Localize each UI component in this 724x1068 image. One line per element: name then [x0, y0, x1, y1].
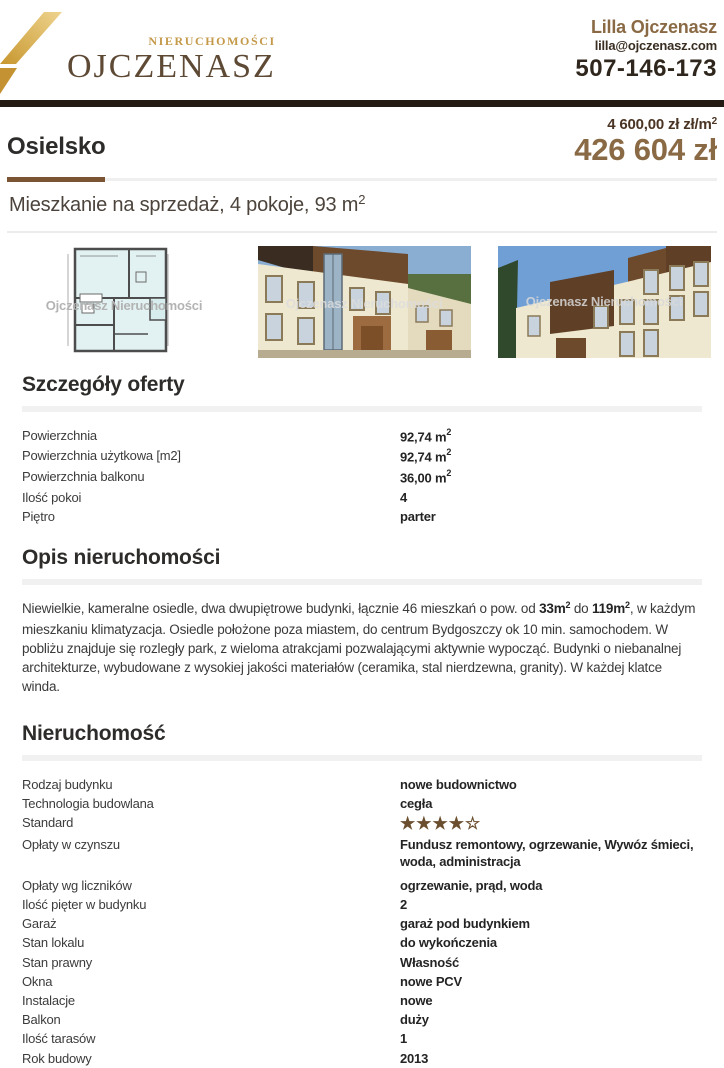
- unit-superscript: 2: [446, 447, 451, 457]
- row-label: Technologia budowlana: [22, 797, 400, 811]
- price-block: 4 600,00 zł zł/m2 426 604 zł: [574, 117, 717, 166]
- description-divider: [22, 579, 702, 585]
- title-underline-accent: [7, 177, 105, 182]
- agent-email[interactable]: lilla@ojczenasz.com: [575, 39, 717, 54]
- star-rating: ★★★★☆: [400, 816, 702, 832]
- table-row: Opłaty w czynszuFundusz remontowy, ogrze…: [22, 835, 702, 876]
- price-per-m2-sup: 2: [712, 116, 717, 127]
- row-value: do wykończenia: [400, 936, 702, 950]
- description-text: Niewielkie, kameralne osiedle, dwa dwupi…: [22, 599, 702, 696]
- property-table: Rodzaj budynkunowe budownictwoTechnologi…: [22, 775, 702, 1068]
- row-value: 2013: [400, 1052, 702, 1066]
- row-label: Ilość pokoi: [22, 491, 400, 505]
- subtitle-divider: [7, 231, 717, 233]
- table-row: Stan prawnyWłasność: [22, 953, 702, 972]
- section-details: Szczegóły oferty Powierzchnia92,74 m2Pow…: [7, 373, 717, 526]
- table-row: Garażgaraż pod budynkiem: [22, 914, 702, 933]
- row-label: Stan prawny: [22, 956, 400, 970]
- table-row: Stan lokaludo wykończenia: [22, 933, 702, 952]
- table-row: Powierzchnia użytkowa [m2]92,74 m2: [22, 447, 702, 468]
- star-filled-icon: ★: [400, 814, 416, 833]
- row-value: 2: [400, 898, 702, 912]
- star-filled-icon: ★: [416, 814, 432, 833]
- row-value: nowe: [400, 994, 702, 1008]
- table-row: Powierzchnia92,74 m2: [22, 426, 702, 447]
- property-divider: [22, 755, 702, 761]
- title-underline: [7, 177, 717, 182]
- row-label: Powierzchnia użytkowa [m2]: [22, 449, 400, 463]
- row-value-line: Fundusz remontowy, ogrzewanie, Wywóz śmi…: [400, 838, 702, 852]
- row-label: Standard: [22, 816, 400, 830]
- row-value: duży: [400, 1013, 702, 1027]
- agent-phone: 507-146-173: [575, 55, 717, 83]
- table-row: Ilość pięter w budynku2: [22, 895, 702, 914]
- row-label: Piętro: [22, 510, 400, 524]
- table-row: Instalacjenowe: [22, 991, 702, 1010]
- brand-name: OJCZENASZ: [67, 50, 276, 84]
- row-label: Okna: [22, 975, 400, 989]
- row-label: Powierzchnia balkonu: [22, 470, 400, 484]
- row-label: Rodzaj budynku: [22, 778, 400, 792]
- photo-building-side[interactable]: Ojczenasz Nieruchomości: [498, 246, 711, 358]
- row-label: Opłaty wg liczników: [22, 879, 400, 893]
- header-bar: [0, 100, 724, 107]
- agent-name: Lilla Ojczenasz: [575, 17, 717, 38]
- section-description: Opis nieruchomości Niewielkie, kameralne…: [7, 546, 717, 696]
- brand-wordmark: NIERUCHOMOŚCI OJCZENASZ: [67, 12, 276, 84]
- row-label: Balkon: [22, 1013, 400, 1027]
- photo-watermark: Ojczenasz Nieruchomości: [286, 296, 443, 311]
- unit-superscript: 2: [446, 427, 451, 437]
- star-filled-icon: ★: [433, 814, 449, 833]
- star-filled-icon: ★: [449, 814, 465, 833]
- property-heading: Nieruchomość: [22, 722, 702, 746]
- row-label: Stan lokalu: [22, 936, 400, 950]
- table-row: Powierzchnia balkonu36,00 m2: [22, 467, 702, 488]
- row-value-line: woda, administracja: [400, 855, 702, 869]
- listing-subtitle: Mieszkanie na sprzedaż, 4 pokoje, 93 m2: [7, 194, 717, 217]
- row-value: cegła: [400, 797, 702, 811]
- unit-superscript: 2: [446, 468, 451, 478]
- unit-superscript: 2: [566, 600, 571, 610]
- row-value: Fundusz remontowy, ogrzewanie, Wywóz śmi…: [400, 838, 702, 873]
- table-row: Oknanowe PCV: [22, 972, 702, 991]
- row-value: ogrzewanie, prąd, woda: [400, 879, 702, 893]
- subtitle-sup: 2: [358, 192, 365, 207]
- row-value: 92,74 m2: [400, 429, 702, 444]
- row-value: garaż pod budynkiem: [400, 917, 702, 931]
- page-header: NIERUCHOMOŚCI OJCZENASZ Lilla Ojczenasz …: [0, 0, 724, 100]
- row-label: Powierzchnia: [22, 429, 400, 443]
- row-label: Opłaty w czynszu: [22, 838, 400, 852]
- row-value: 4: [400, 491, 702, 505]
- table-row: Opłaty wg licznikówogrzewanie, prąd, wod…: [22, 876, 702, 895]
- row-value: 1: [400, 1032, 702, 1046]
- price-total: 426 604 zł: [574, 134, 717, 167]
- photo-floor-plan[interactable]: Ojczenasz Nieruchomości: [18, 246, 231, 358]
- row-label: Instalacje: [22, 994, 400, 1008]
- row-label: Garaż: [22, 917, 400, 931]
- title-underline-rest: [105, 178, 717, 181]
- row-label: Rok budowy: [22, 1052, 400, 1066]
- photo-watermark: Ojczenasz Nieruchomości: [526, 294, 683, 309]
- description-heading: Opis nieruchomości: [22, 546, 702, 570]
- listing-main: Osielsko 4 600,00 zł zł/m2 426 604 zł Mi…: [0, 117, 724, 1068]
- section-property: Nieruchomość Rodzaj budynkunowe budownic…: [7, 722, 717, 1068]
- brand-logo-icon: [0, 12, 62, 96]
- table-row: Piętroparter: [22, 507, 702, 526]
- table-row: Technologia budowlanacegła: [22, 794, 702, 813]
- agent-contact: Lilla Ojczenasz lilla@ojczenasz.com 507-…: [575, 17, 717, 82]
- table-row: Rok budowy2013: [22, 1049, 702, 1068]
- row-value: 36,00 m2: [400, 470, 702, 485]
- brand-tagline: NIERUCHOMOŚCI: [67, 34, 276, 49]
- star-empty-icon: ☆: [465, 814, 481, 833]
- row-value: nowe PCV: [400, 975, 702, 989]
- details-divider: [22, 406, 702, 412]
- table-row: Balkonduży: [22, 1010, 702, 1029]
- row-label: Ilość pięter w budynku: [22, 898, 400, 912]
- table-row: Rodzaj budynkunowe budownictwo: [22, 775, 702, 794]
- table-row: Ilość tarasów1: [22, 1030, 702, 1049]
- row-value: 92,74 m2: [400, 449, 702, 464]
- row-value: nowe budownictwo: [400, 778, 702, 792]
- photo-building-front[interactable]: Ojczenasz Nieruchomości: [258, 246, 471, 358]
- table-row: Standard★★★★☆: [22, 814, 702, 835]
- title-row: Osielsko 4 600,00 zł zł/m2 426 604 zł: [7, 117, 717, 166]
- page-title: Osielsko: [7, 133, 105, 161]
- row-label: Ilość tarasów: [22, 1032, 400, 1046]
- row-value: Własność: [400, 956, 702, 970]
- details-heading: Szczegóły oferty: [22, 373, 702, 397]
- photo-gallery: Ojczenasz Nieruchomości Ojczenasz Nier: [18, 246, 717, 358]
- brand-logo: NIERUCHOMOŚCI OJCZENASZ: [0, 12, 276, 96]
- details-table: Powierzchnia92,74 m2Powierzchnia użytkow…: [22, 426, 702, 526]
- row-value: parter: [400, 510, 702, 524]
- unit-superscript: 2: [625, 600, 630, 610]
- photo-watermark: Ojczenasz Nieruchomości: [46, 298, 203, 313]
- table-row: Ilość pokoi4: [22, 488, 702, 507]
